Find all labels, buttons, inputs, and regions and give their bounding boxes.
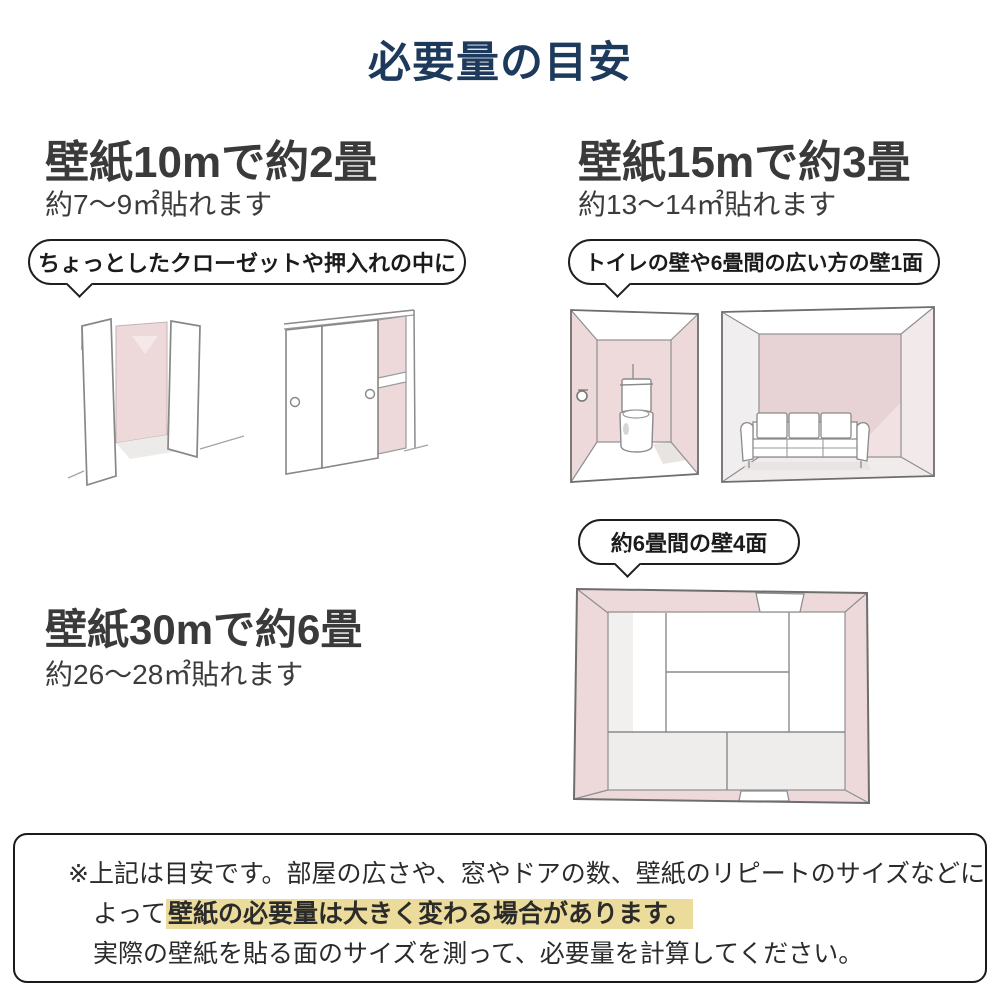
footer-line-1: ※上記は目安です。部屋の広さや、窓やドアの数、壁紙のリピートのサイズなどに (93, 854, 959, 894)
section-10m-bubble: ちょっとしたクローゼットや押入れの中に (28, 239, 466, 285)
section-15m-subtext: 約13〜14㎡貼れます (578, 183, 836, 223)
section-30m-subtext: 約26〜28㎡貼れます (45, 653, 303, 693)
footer-line-2-highlight: 壁紙の必要量は大きく変わる場合があります。 (166, 899, 693, 929)
section-10m-bubble-label: ちょっとしたクローゼットや押入れの中に (38, 246, 456, 278)
six-mat-room-top-view-illustration (571, 584, 873, 810)
footer-line-2: よって壁紙の必要量は大きく変わる場合があります。 (93, 894, 959, 934)
sliding-door-closet-illustration (278, 302, 428, 487)
page-title: 必要量の目安 (0, 28, 1000, 90)
footer-line-3: 実際の壁紙を貼る面のサイズを測って、必要量を計算してください。 (93, 934, 959, 974)
toilet-room-illustration (567, 306, 702, 486)
sofa-room-wall-illustration (719, 304, 937, 486)
six-mat-bubble-label: 約6畳間の壁4面 (611, 526, 767, 558)
section-30m-heading: 壁紙30mで約6畳 (45, 596, 362, 657)
section-15m-bubble-label: トイレの壁や6畳間の広い方の壁1面 (585, 247, 923, 277)
section-10m-heading: 壁紙10mで約2畳 (45, 126, 378, 190)
six-mat-bubble: 約6畳間の壁4面 (578, 519, 800, 565)
section-15m-bubble: トイレの壁や6畳間の広い方の壁1面 (568, 239, 940, 285)
footer-note-box: ※上記は目安です。部屋の広さや、窓やドアの数、壁紙のリピートのサイズなどに よっ… (13, 833, 987, 983)
footer-line-2-prefix: よって (93, 900, 166, 928)
section-15m-heading: 壁紙15mで約3畳 (578, 126, 911, 190)
section-10m-subtext: 約7〜9㎡貼れます (45, 183, 272, 223)
closet-open-doors-illustration (66, 316, 246, 491)
